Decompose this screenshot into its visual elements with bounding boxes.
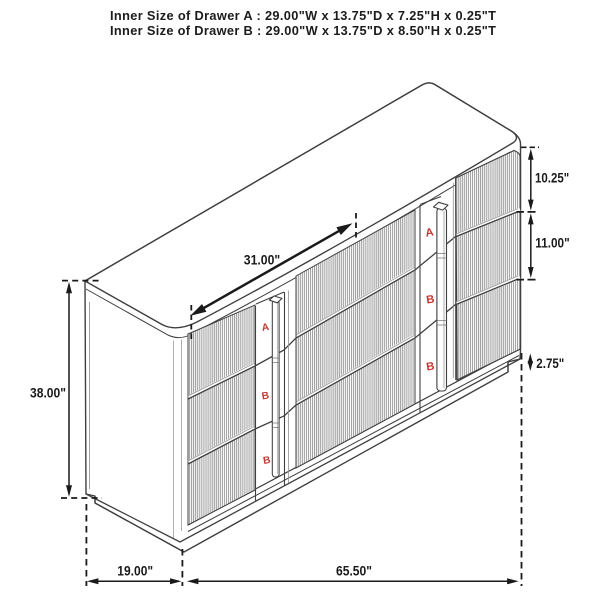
svg-text:38.00": 38.00": [30, 386, 66, 401]
svg-text:Inner Size of Drawer B : 29.00: Inner Size of Drawer B : 29.00"W x 13.75…: [110, 23, 496, 38]
svg-text:2.75": 2.75": [536, 356, 564, 371]
svg-text:Inner Size of Drawer A : 29.00: Inner Size of Drawer A : 29.00"W x 13.75…: [110, 8, 496, 23]
svg-text:11.00": 11.00": [535, 236, 569, 251]
svg-text:10.25": 10.25": [535, 171, 569, 186]
svg-text:19.00": 19.00": [117, 564, 153, 579]
svg-text:31.00": 31.00": [244, 253, 280, 268]
svg-text:65.50": 65.50": [336, 564, 372, 579]
